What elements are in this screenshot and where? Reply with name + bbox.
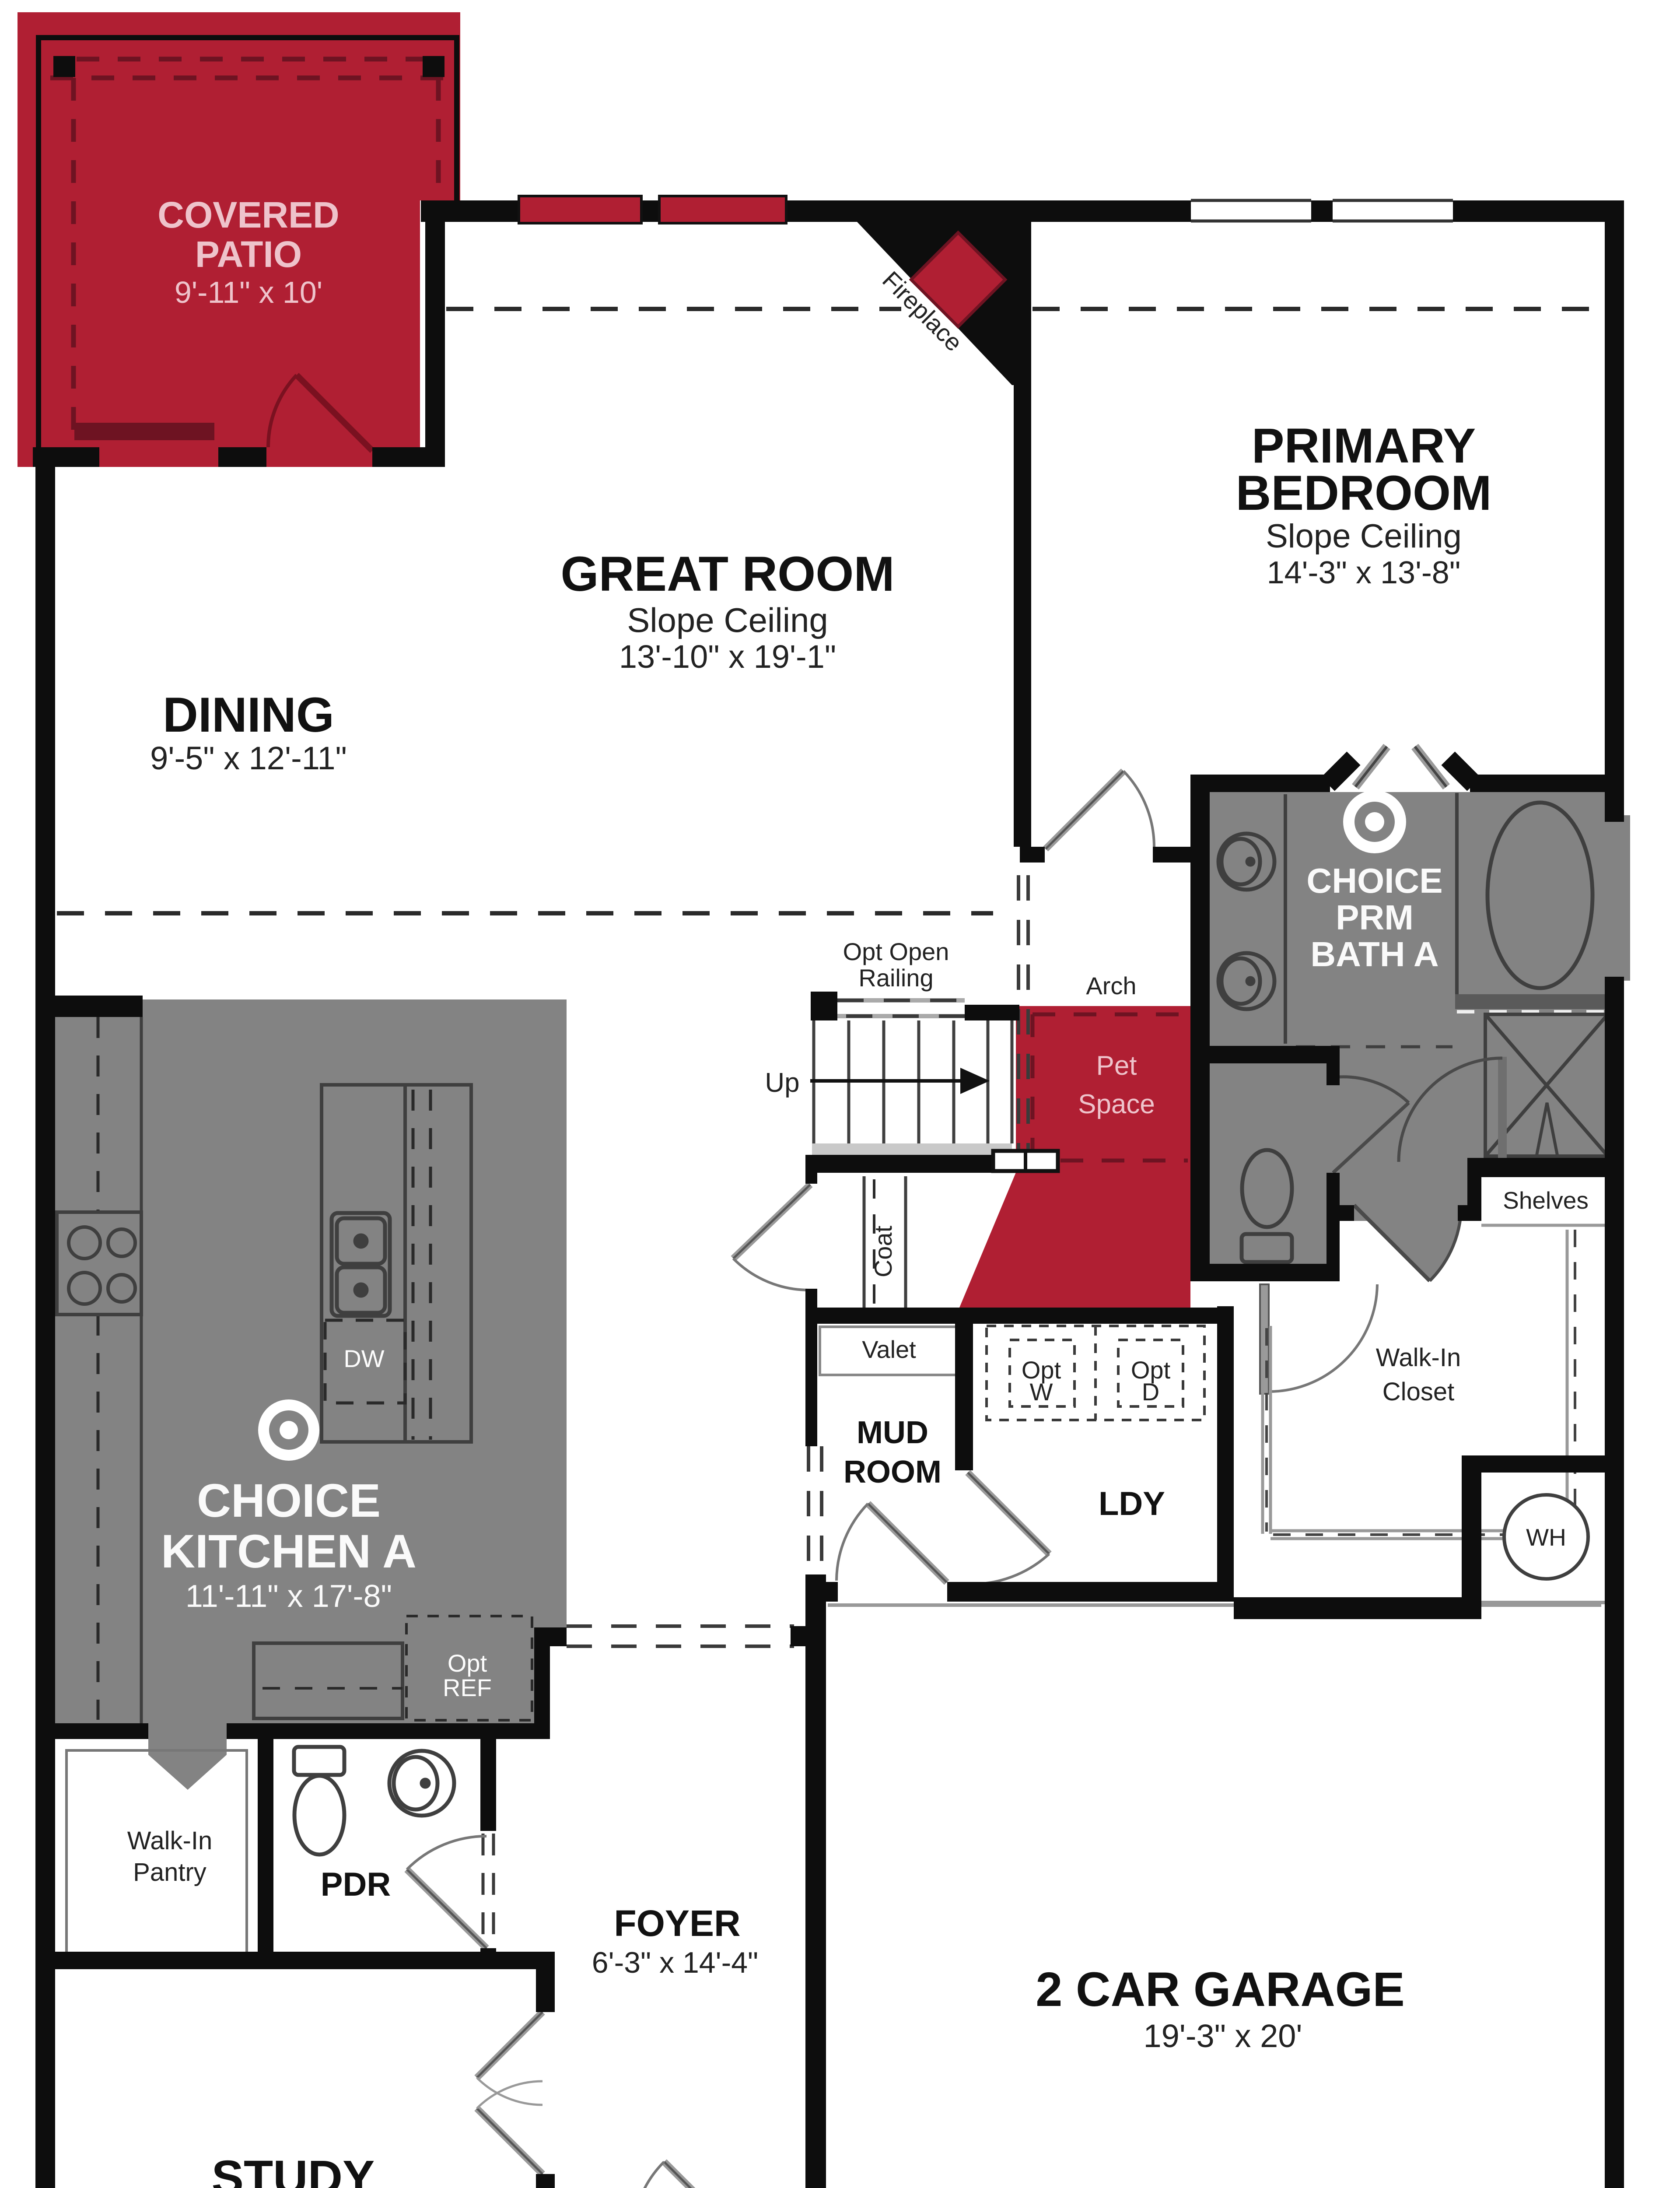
svg-text:19'-3" x 20': 19'-3" x 20' xyxy=(1143,2018,1302,2054)
svg-text:Slope Ceiling: Slope Ceiling xyxy=(1266,518,1462,555)
svg-text:WH: WH xyxy=(1526,1524,1566,1551)
svg-text:Up: Up xyxy=(765,1068,799,1098)
svg-text:PDR: PDR xyxy=(321,1866,391,1903)
svg-text:W: W xyxy=(1030,1378,1053,1406)
svg-text:13'-10" x 19'-1": 13'-10" x 19'-1" xyxy=(619,638,836,675)
svg-text:9'-11" x 10': 9'-11" x 10' xyxy=(175,275,322,309)
svg-text:6'-3" x 14'-4": 6'-3" x 14'-4" xyxy=(592,1946,758,1979)
svg-text:2 CAR GARAGE: 2 CAR GARAGE xyxy=(1036,1963,1404,2016)
svg-text:Space: Space xyxy=(1078,1089,1155,1119)
svg-text:Arch: Arch xyxy=(1086,972,1136,999)
svg-text:KITCHEN A: KITCHEN A xyxy=(161,1525,416,1578)
svg-text:Valet: Valet xyxy=(862,1336,916,1363)
svg-text:Coat: Coat xyxy=(869,1225,897,1277)
svg-text:STUDY: STUDY xyxy=(212,2151,375,2188)
svg-text:COVERED: COVERED xyxy=(157,194,339,235)
svg-text:Pantry: Pantry xyxy=(133,1858,206,1886)
svg-text:14'-3" x 13'-8": 14'-3" x 13'-8" xyxy=(1267,555,1461,590)
svg-text:MUD: MUD xyxy=(857,1415,928,1450)
svg-text:D: D xyxy=(1142,1378,1159,1406)
svg-text:Walk-In: Walk-In xyxy=(1376,1343,1461,1372)
svg-text:CHOICE: CHOICE xyxy=(197,1474,381,1527)
svg-text:Pet: Pet xyxy=(1096,1051,1137,1081)
svg-text:PRM: PRM xyxy=(1336,898,1414,937)
svg-text:PRIMARY: PRIMARY xyxy=(1252,418,1476,473)
svg-text:Shelves: Shelves xyxy=(1503,1187,1589,1214)
svg-text:Walk-In: Walk-In xyxy=(127,1827,212,1855)
svg-text:Closet: Closet xyxy=(1382,1378,1454,1406)
svg-text:11'-11" x 17'-8": 11'-11" x 17'-8" xyxy=(185,1579,392,1614)
svg-text:9'-5" x 12'-11": 9'-5" x 12'-11" xyxy=(150,740,347,776)
svg-text:FOYER: FOYER xyxy=(614,1903,740,1944)
svg-text:CHOICE: CHOICE xyxy=(1306,861,1442,900)
svg-text:REF: REF xyxy=(443,1674,492,1701)
svg-text:BEDROOM: BEDROOM xyxy=(1236,466,1492,520)
svg-text:GREAT ROOM: GREAT ROOM xyxy=(560,547,894,601)
svg-text:PATIO: PATIO xyxy=(195,234,302,275)
svg-text:Opt: Opt xyxy=(448,1649,487,1677)
svg-text:Railing: Railing xyxy=(858,964,933,992)
svg-text:LDY: LDY xyxy=(1099,1485,1165,1522)
svg-text:ROOM: ROOM xyxy=(843,1455,941,1490)
svg-text:Opt Open: Opt Open xyxy=(843,938,949,965)
svg-text:DINING: DINING xyxy=(163,687,334,742)
svg-text:BATH A: BATH A xyxy=(1310,935,1438,974)
svg-text:DW: DW xyxy=(343,1345,384,1372)
svg-text:Slope Ceiling: Slope Ceiling xyxy=(627,601,828,639)
